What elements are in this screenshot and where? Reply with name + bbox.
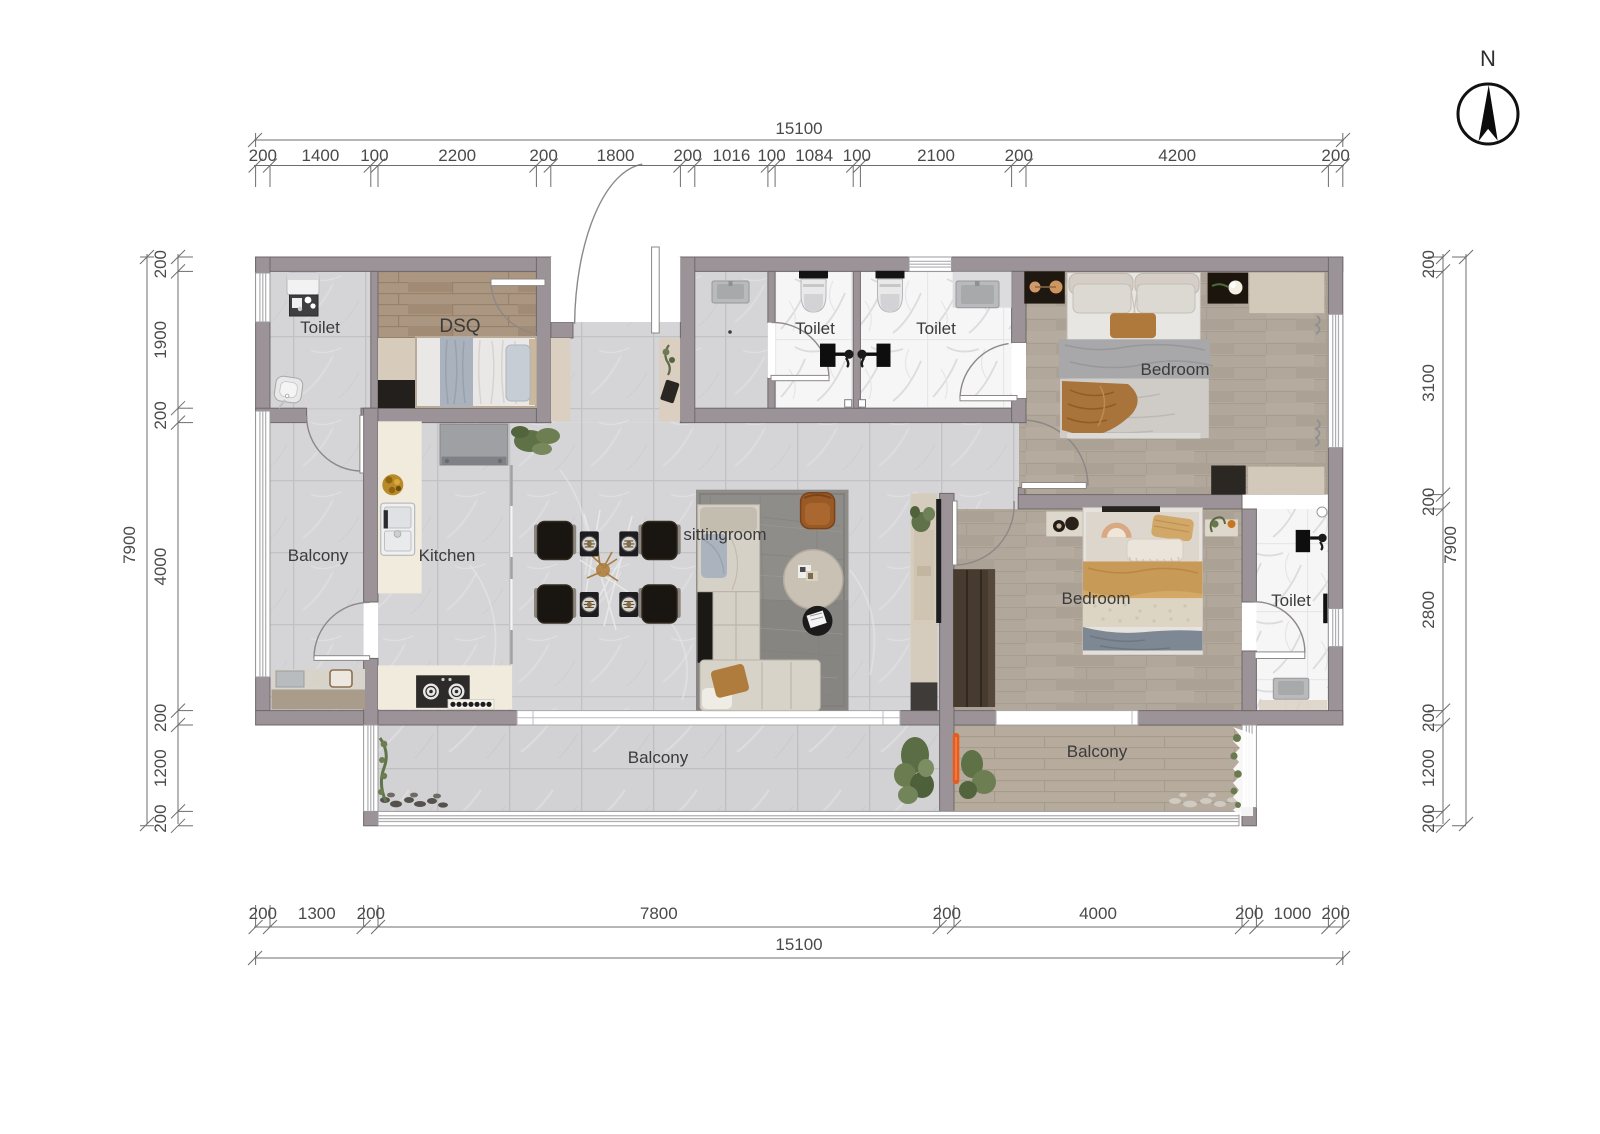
svg-text:200: 200 bbox=[1005, 146, 1033, 165]
svg-text:200: 200 bbox=[933, 904, 961, 923]
svg-text:200: 200 bbox=[151, 804, 170, 832]
svg-text:Balcony: Balcony bbox=[1067, 742, 1128, 761]
svg-text:7900: 7900 bbox=[1441, 526, 1460, 564]
svg-text:1200: 1200 bbox=[151, 749, 170, 787]
svg-text:200: 200 bbox=[673, 146, 701, 165]
svg-text:Toilet: Toilet bbox=[1271, 591, 1311, 610]
svg-text:2800: 2800 bbox=[1419, 591, 1438, 629]
svg-text:200: 200 bbox=[151, 250, 170, 278]
svg-text:1084: 1084 bbox=[795, 146, 833, 165]
svg-text:DSQ: DSQ bbox=[439, 316, 480, 337]
svg-text:200: 200 bbox=[1419, 804, 1438, 832]
svg-text:Balcony: Balcony bbox=[288, 546, 349, 565]
svg-text:Bedroom: Bedroom bbox=[1141, 360, 1210, 379]
svg-text:200: 200 bbox=[151, 704, 170, 732]
svg-text:1300: 1300 bbox=[298, 904, 336, 923]
svg-text:Kitchen: Kitchen bbox=[419, 546, 476, 565]
svg-text:4000: 4000 bbox=[1079, 904, 1117, 923]
svg-text:Toilet: Toilet bbox=[300, 318, 340, 337]
svg-text:Bedroom: Bedroom bbox=[1062, 589, 1131, 608]
svg-text:200: 200 bbox=[151, 401, 170, 429]
svg-text:Toilet: Toilet bbox=[795, 319, 835, 338]
svg-text:2100: 2100 bbox=[917, 146, 955, 165]
svg-text:15100: 15100 bbox=[775, 935, 822, 954]
svg-text:N: N bbox=[1480, 46, 1496, 71]
svg-text:200: 200 bbox=[249, 904, 277, 923]
svg-text:1016: 1016 bbox=[712, 146, 750, 165]
svg-text:100: 100 bbox=[843, 146, 871, 165]
svg-text:4200: 4200 bbox=[1158, 146, 1196, 165]
svg-text:200: 200 bbox=[357, 904, 385, 923]
svg-text:1000: 1000 bbox=[1273, 904, 1311, 923]
svg-text:Toilet: Toilet bbox=[916, 319, 956, 338]
svg-text:Balcony: Balcony bbox=[628, 748, 689, 767]
svg-text:3100: 3100 bbox=[1419, 364, 1438, 402]
svg-text:200: 200 bbox=[1235, 904, 1263, 923]
svg-text:200: 200 bbox=[1419, 488, 1438, 516]
svg-text:200: 200 bbox=[249, 146, 277, 165]
svg-text:200: 200 bbox=[1321, 904, 1349, 923]
svg-text:1800: 1800 bbox=[597, 146, 635, 165]
svg-text:200: 200 bbox=[1419, 250, 1438, 278]
svg-text:1900: 1900 bbox=[151, 321, 170, 359]
svg-text:1200: 1200 bbox=[1419, 749, 1438, 787]
svg-text:200: 200 bbox=[1419, 704, 1438, 732]
svg-text:200: 200 bbox=[1321, 146, 1349, 165]
svg-text:2200: 2200 bbox=[438, 146, 476, 165]
svg-text:15100: 15100 bbox=[775, 119, 822, 138]
svg-text:1400: 1400 bbox=[301, 146, 339, 165]
svg-text:4000: 4000 bbox=[151, 548, 170, 586]
svg-text:100: 100 bbox=[757, 146, 785, 165]
svg-text:7800: 7800 bbox=[640, 904, 678, 923]
svg-text:7900: 7900 bbox=[120, 526, 139, 564]
svg-text:200: 200 bbox=[529, 146, 557, 165]
svg-text:sittingroom: sittingroom bbox=[683, 525, 766, 544]
svg-text:100: 100 bbox=[360, 146, 388, 165]
